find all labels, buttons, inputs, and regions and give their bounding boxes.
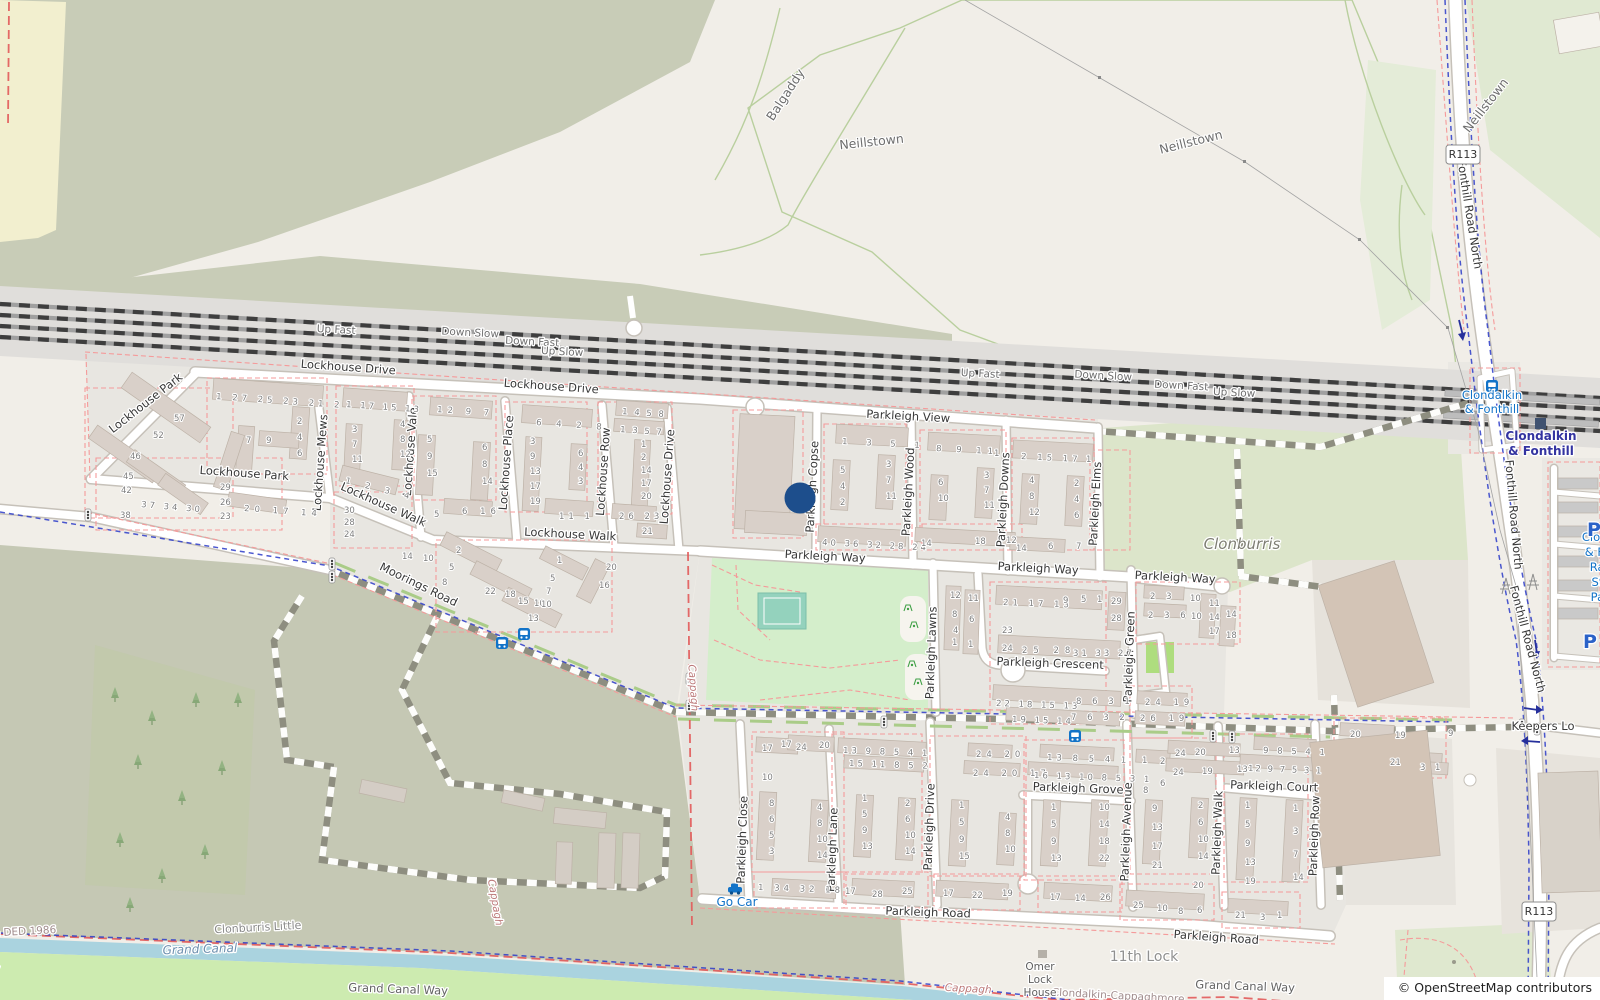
map-label-gocar: Go Car [716, 895, 757, 909]
map-label-hn: 13 [1237, 765, 1248, 775]
map-label-bus: & Fonthill [1585, 545, 1600, 559]
map-label-hn: 6 [969, 615, 974, 625]
route-badge-r113: R113 [1446, 145, 1480, 164]
map-label-hn: 3 [1420, 763, 1425, 773]
map-label-hn: 1 [968, 640, 973, 650]
map-label-hn: 20 [1350, 730, 1361, 740]
map-label-hn: 19 [1395, 731, 1406, 741]
map-label-hn: 17 [943, 889, 954, 899]
map-label-hn: 14 [1075, 894, 1086, 904]
map-label-hn: 6 16 [462, 507, 501, 517]
map-label-hn: 1 [1142, 756, 1147, 766]
map-label-hn: 21 [642, 527, 653, 537]
map-label-hn: 8 [442, 578, 447, 588]
map-label-pk: P [1587, 519, 1600, 541]
turning-circle [626, 320, 642, 336]
map-label-bus: Station [1592, 575, 1600, 589]
map-label-st: Parkleigh Walk [1209, 790, 1226, 875]
map-label-hn: 1 [1277, 911, 1282, 921]
map-label-rail: Up Fast [960, 367, 999, 381]
map-label-hn: 38 [120, 511, 131, 521]
traffic-signal-icon [1210, 730, 1216, 742]
map-label-hn: 20 [1193, 881, 1204, 891]
map-label-place-i: Clonburris [1204, 535, 1281, 553]
map-label-hn: 17 [1050, 893, 1061, 903]
route-badge-label: R113 [1449, 148, 1478, 161]
map-label-hn: 10 [1190, 594, 1201, 604]
map-label-hn: 52 [153, 431, 164, 441]
map-label-st: Parkleigh Road [885, 904, 971, 921]
map-label-stn: & Fonthill [1508, 444, 1574, 458]
map-label-hn: 20 [606, 563, 617, 573]
route-badge-r113: R113 [1522, 902, 1556, 921]
map-label-hn: 24 20 [976, 750, 1025, 760]
map-label-hn: 21 [1390, 758, 1401, 768]
map-label-rail: Up Slow [1213, 386, 1256, 400]
route-badge-label: R113 [1525, 905, 1554, 918]
map-label-hn: 23 [1002, 626, 1013, 636]
map-label-hn: 20 [819, 741, 830, 751]
map-label-hn: 10 [1157, 904, 1168, 914]
map-label-hn: 1 [557, 556, 562, 566]
map-label-hn: 4 [953, 626, 958, 636]
map-label-hn: 8 [952, 610, 957, 620]
map-label-hn: 14 [1016, 544, 1027, 554]
map-label-hn: 1 [1086, 455, 1091, 465]
map-label-hn: 6 [1048, 542, 1053, 552]
map-label-hn: 21 [1235, 911, 1246, 921]
map-label-hn: 26 23 [619, 512, 663, 522]
bus-stop-icon[interactable] [496, 637, 508, 649]
map-label-hn: 16 [599, 581, 610, 591]
map-label-bus: Parking [1591, 590, 1600, 604]
traffic-signal-icon [329, 571, 335, 583]
map-label-hn: 13 [1229, 746, 1240, 756]
map-label-hn: 23 [220, 512, 231, 522]
map-label-hn: 28 [1111, 614, 1122, 624]
map-label-bnd: Cappagh [944, 982, 991, 996]
attribution-text: © OpenStreetMap contributors [1398, 980, 1592, 995]
map-label-hn: 10 [762, 773, 773, 783]
map-label-bus: Railway [1590, 560, 1600, 574]
map-label-hn: 7 9 [246, 436, 278, 446]
map-label-hn: 11 1 [559, 512, 594, 522]
map-label-hn: 10 [1191, 612, 1202, 622]
map-label-pois: House [1024, 987, 1057, 999]
map-label-hn: 5 [550, 574, 555, 584]
lock-house-building [1038, 950, 1047, 958]
map-label-hn: 45 [123, 472, 134, 482]
map-label-hn: 10 [423, 554, 434, 564]
map-label-hn: 14 [921, 539, 932, 549]
map-label-hn: 1 [1435, 763, 1440, 773]
map-label-hn: 17 [762, 744, 773, 754]
map-label-hn: 25 [1133, 901, 1144, 911]
map-label-hn: 246 [1074, 479, 1079, 521]
map-label-hn: 24 [1002, 644, 1013, 654]
map-label-hn: 29 [1111, 597, 1122, 607]
map-label-hn: 8 [1178, 907, 1183, 917]
map-label-hn: 8 6 3 1 [1076, 697, 1134, 707]
map-label-stn: Clondalkin [1505, 429, 1576, 443]
map-label-hn: 20 [1195, 748, 1206, 758]
map-label-hn: 111417 [1209, 599, 1220, 637]
map-label-hn: 2 [456, 546, 461, 556]
playground-area [900, 596, 926, 642]
map-label-rail: Up Slow [541, 345, 584, 359]
map-label-hn: 7 6 3 2 [1071, 713, 1129, 723]
map-label-hn: 24 [1173, 768, 1184, 778]
bus-stop-icon[interactable] [1069, 730, 1081, 742]
map-label-hn: 2 3 6 [1148, 611, 1190, 621]
map-label-st: Parkleigh Lane [824, 807, 841, 892]
map-label-hn: 22 [972, 891, 983, 901]
map-label-hn: 2 3 [1150, 592, 1176, 602]
map-label-pois: Lock [1028, 974, 1053, 986]
map-label-hn: 18 [505, 590, 516, 600]
map-label-hn: 31 33 27 [1073, 649, 1135, 659]
map-label-hn: 25 28 [1022, 646, 1076, 656]
map-label-hn: 24 19 [1145, 698, 1194, 708]
map-label-hn: 22 [485, 587, 496, 597]
map-label-hn: 5 [1081, 595, 1086, 605]
map-label-hn: 24 [1175, 749, 1186, 759]
map-label-hn: 302824 [344, 506, 355, 540]
map-label-hn: 28 [872, 890, 883, 900]
traffic-signal-icon [881, 716, 887, 728]
station-building [1535, 418, 1546, 429]
map-label-hn: 643 [578, 449, 583, 487]
map-label-hn: 12 [950, 591, 961, 601]
map-label-pois: Omer [1025, 961, 1055, 973]
map-label-hn: 11 [968, 594, 979, 604]
map-label-st: Parkleigh Row [1306, 795, 1323, 876]
map-label-hn: 10 [541, 600, 552, 610]
map-label-hn: 19 [1002, 889, 1013, 899]
map-viewport[interactable]: Lockhouse DriveLockhouse DriveLockhouse … [0, 0, 1600, 1000]
map-label-hn: 42 [121, 486, 132, 496]
map-label-hn: 15 [518, 597, 529, 607]
map-attribution[interactable]: © OpenStreetMap contributors [1384, 977, 1600, 1000]
map-label-bus: Clondalkin [1462, 388, 1522, 402]
map-label-hn: 17 [781, 740, 792, 750]
map-label-hn: 17 [845, 887, 856, 897]
map-label-hn: 46 [130, 452, 141, 462]
map-label-rail: Up Fast [316, 323, 355, 337]
map-label-hn: 3 [1260, 913, 1265, 923]
traffic-signal-icon [329, 558, 335, 570]
map-label-hn: 1 [952, 638, 957, 648]
map-label-hn: 2 [1160, 757, 1165, 767]
map-label-hn: 5 [449, 563, 454, 573]
map-label-bus: & Fonthill [1465, 402, 1520, 416]
map-label-hn: 1 [994, 449, 999, 459]
map-canvas[interactable]: Lockhouse DriveLockhouse DriveLockhouse … [0, 0, 1600, 1000]
map-label-hn: 6 [1197, 906, 1202, 916]
map-label-hn: 18 [975, 537, 986, 547]
map-label-lock: 11th Lock [1110, 949, 1179, 965]
map-label-hn: 7 [546, 587, 551, 597]
map-label-hn: 1 [1097, 595, 1102, 605]
map-label-hn: 5 [434, 510, 439, 520]
map-label-hn: 9 [1448, 729, 1453, 739]
map-label-hn: 542 [840, 466, 845, 508]
map-label-hn: 246 [297, 417, 302, 459]
map-label-st: Keepers Lo [1511, 719, 1574, 733]
location-marker[interactable] [785, 483, 816, 514]
map-label-hn: 29 [220, 483, 231, 493]
traffic-signal-icon [85, 509, 91, 521]
map-label-hn: 9 [1063, 596, 1068, 606]
map-label-hn: 25 [902, 887, 913, 897]
map-label-hn: 6 [1160, 779, 1165, 789]
map-label-hn: 26 19 [1140, 714, 1189, 724]
map-label-hn: 57 [174, 414, 185, 424]
map-label-hn: 13 [528, 614, 539, 624]
map-label-hn: 7 [1076, 542, 1081, 552]
map-label-hn: 19 [1202, 767, 1213, 777]
map-label-hn: 24 [796, 743, 807, 753]
traffic-signal-icon [1229, 731, 1235, 743]
map-label-pk: P [1583, 631, 1597, 653]
map-label-hn: 26 [220, 498, 231, 508]
bus-stop-icon[interactable] [518, 628, 530, 640]
map-label-hn: 8 [1143, 786, 1148, 796]
map-label-water: Grand Canal [162, 941, 238, 958]
map-label-hn: 26 [1100, 893, 1111, 903]
map-label-hn: 14 [402, 552, 413, 562]
